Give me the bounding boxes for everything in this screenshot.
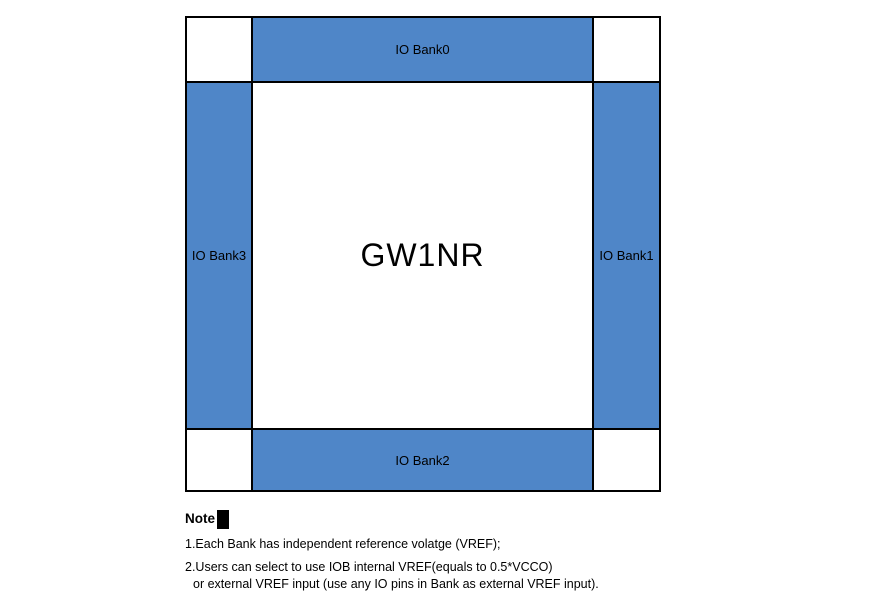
io-bank2-block: IO Bank2 (253, 430, 592, 490)
corner-bottom-right (594, 430, 659, 490)
io-bank3-block: IO Bank3 (187, 83, 251, 428)
note-heading: Note (185, 509, 215, 529)
io-bank3-label: IO Bank3 (192, 248, 246, 263)
chip-io-bank-diagram: IO Bank0 IO Bank3 GW1NR IO Bank1 IO Bank… (185, 16, 661, 492)
note-item-2-continuation: or external VREF input (use any IO pins … (185, 577, 745, 592)
cursor-block-icon (217, 510, 229, 529)
io-bank0-block: IO Bank0 (253, 18, 592, 81)
io-bank1-label: IO Bank1 (599, 248, 653, 263)
note-item-1: 1.Each Bank has independent reference vo… (185, 537, 745, 552)
io-bank0-label: IO Bank0 (395, 42, 449, 57)
figure-canvas: IO Bank0 IO Bank3 GW1NR IO Bank1 IO Bank… (0, 0, 872, 607)
corner-top-left (187, 18, 251, 81)
io-bank2-label: IO Bank2 (395, 453, 449, 468)
io-bank1-block: IO Bank1 (594, 83, 659, 428)
corner-top-right (594, 18, 659, 81)
chip-core-label: GW1NR (360, 237, 484, 274)
note-item-2: 2.Users can select to use IOB internal V… (185, 560, 745, 575)
chip-core-block: GW1NR (253, 83, 592, 428)
notes-section: Note 1.Each Bank has independent referen… (185, 509, 745, 592)
note-heading-row: Note (185, 509, 745, 530)
corner-bottom-left (187, 430, 251, 490)
